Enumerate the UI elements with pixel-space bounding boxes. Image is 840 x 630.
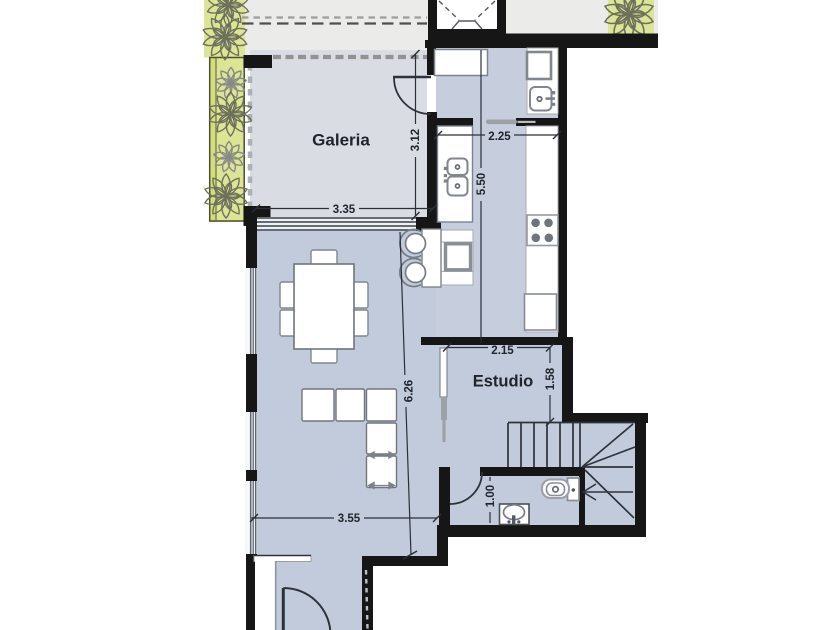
svg-text:2.25: 2.25 xyxy=(488,131,511,143)
svg-text:3.12: 3.12 xyxy=(410,129,422,151)
svg-text:6.26: 6.26 xyxy=(404,380,416,402)
svg-text:3.35: 3.35 xyxy=(333,204,356,216)
svg-text:1.00: 1.00 xyxy=(485,485,497,507)
svg-text:Galeria: Galeria xyxy=(312,131,370,150)
svg-text:5.50: 5.50 xyxy=(476,173,488,195)
svg-text:1.58: 1.58 xyxy=(545,367,557,390)
svg-text:Estudio: Estudio xyxy=(473,373,534,391)
svg-text:3.55: 3.55 xyxy=(338,513,361,525)
svg-text:2.15: 2.15 xyxy=(491,345,514,357)
